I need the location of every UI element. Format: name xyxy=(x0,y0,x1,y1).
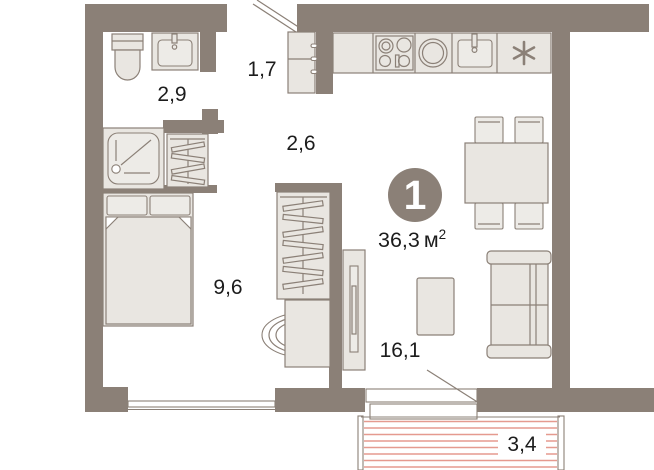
wall-bathroom-right-upper xyxy=(200,32,216,72)
wall-closet-top xyxy=(163,120,224,133)
floor-plan: 2,9 1,7 2,6 9,6 16,1 3,4 1 36,3м2 xyxy=(0,0,654,470)
unit-badge: 1 36,3м2 xyxy=(378,168,446,252)
label-bathroom-area: 2,9 xyxy=(157,83,186,106)
label-balcony-area: 3,4 xyxy=(507,433,537,456)
pillow xyxy=(107,196,147,215)
balcony-fence-left xyxy=(358,416,363,470)
balcony-door-frame xyxy=(366,389,477,419)
tv-stand xyxy=(343,250,365,370)
entry-door-swing xyxy=(253,0,300,32)
label-bedroom-area: 9,6 xyxy=(213,276,242,299)
wall-top-left xyxy=(85,4,227,32)
bed xyxy=(103,193,193,326)
shower xyxy=(103,128,164,189)
chair xyxy=(515,203,543,229)
wall-bottom-middle xyxy=(275,388,365,412)
bedroom-window xyxy=(124,401,284,410)
kitchen-counter xyxy=(333,33,551,73)
wall-right xyxy=(552,4,570,412)
dresser-cabinet xyxy=(285,300,330,367)
bathroom-sink xyxy=(152,33,198,70)
floor-plan-svg: 2,9 1,7 2,6 9,6 16,1 3,4 1 36,3м2 xyxy=(0,0,654,470)
wall-bottom-right xyxy=(477,388,654,412)
dining-set xyxy=(465,117,548,229)
wall-center-divider xyxy=(329,183,342,393)
tv xyxy=(350,266,358,352)
wall-top-right xyxy=(297,4,649,32)
label-living-room-area: 16,1 xyxy=(380,339,421,362)
pillow xyxy=(150,196,190,215)
total-area: 36,3м2 xyxy=(378,227,446,252)
total-area-sup: 2 xyxy=(439,227,447,242)
hallway-cabinet xyxy=(288,32,317,93)
blanket xyxy=(106,217,191,324)
balcony-fence-right xyxy=(558,416,564,470)
wall-left xyxy=(85,4,103,412)
sofa-armrest xyxy=(487,345,551,358)
label-corridor-area: 2,6 xyxy=(286,132,315,155)
wardrobe xyxy=(277,192,330,299)
sofa-armrest xyxy=(487,251,551,264)
toilet xyxy=(112,34,143,80)
total-area-value: 36,3 xyxy=(378,228,420,252)
unit-number: 1 xyxy=(404,172,427,218)
sofa xyxy=(487,251,551,358)
coffee-table xyxy=(417,278,454,335)
wall-bottom-left-corner xyxy=(85,387,128,412)
hall-closet xyxy=(167,134,208,187)
chair xyxy=(475,117,503,143)
wall-hallway-stub xyxy=(316,32,333,94)
chair xyxy=(515,117,543,143)
label-hallway-area: 1,7 xyxy=(247,58,276,81)
dining-table xyxy=(465,143,548,203)
chair xyxy=(475,203,503,229)
total-area-unit: м xyxy=(424,228,439,252)
